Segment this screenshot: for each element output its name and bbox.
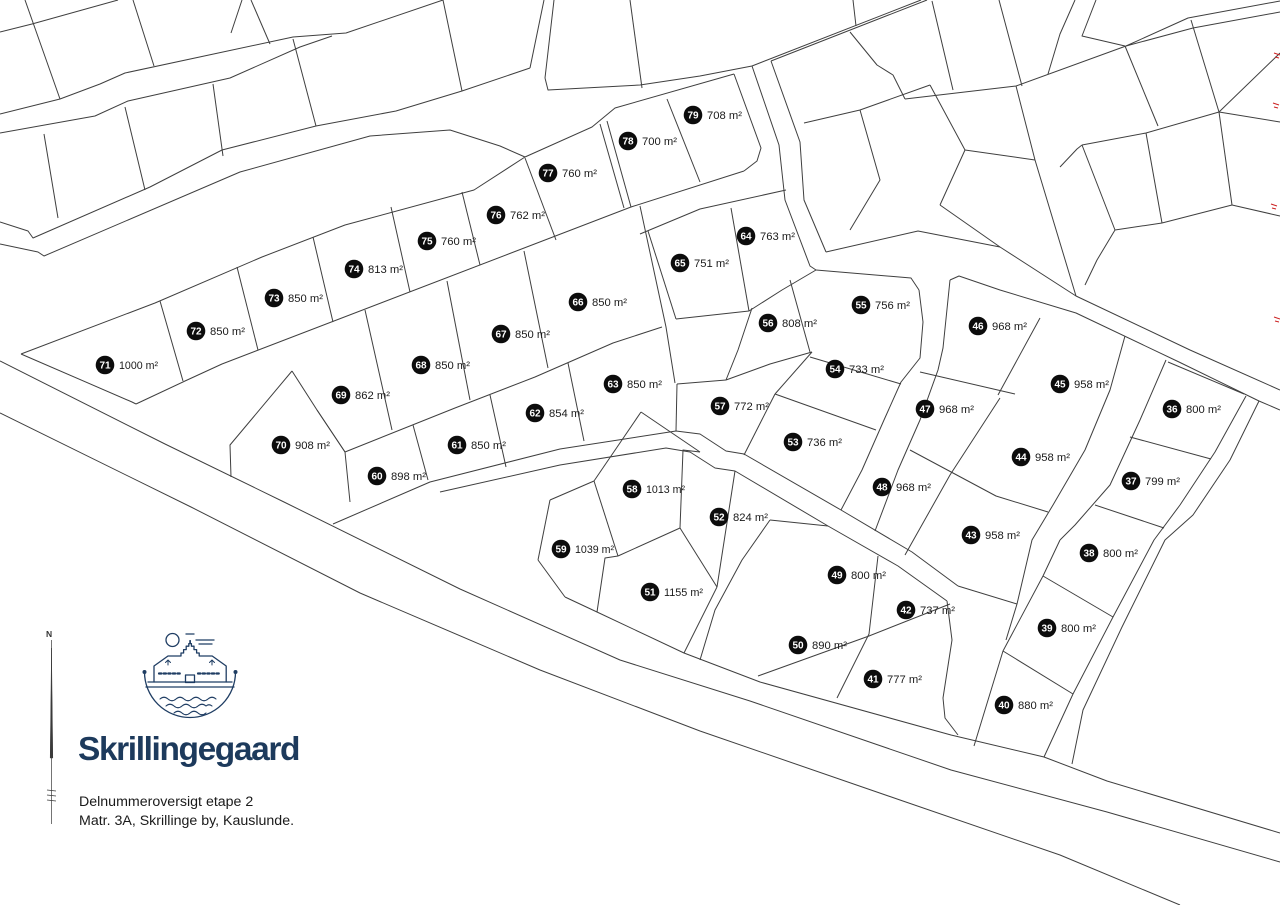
svg-text:Matr. 3A, Skrillinge by, Kausl: Matr. 3A, Skrillinge by, Kauslunde. (79, 813, 294, 829)
svg-text:42: 42 (900, 606, 912, 617)
svg-text:38: 38 (1083, 549, 1095, 560)
svg-text:59: 59 (555, 545, 567, 556)
svg-text:43: 43 (965, 531, 977, 542)
svg-text:70: 70 (275, 441, 287, 452)
svg-text:N: N (46, 629, 52, 639)
svg-text:41: 41 (867, 675, 879, 686)
svg-text:736 m²: 736 m² (807, 437, 842, 449)
svg-text:751 m²: 751 m² (694, 258, 729, 270)
svg-text:777 m²: 777 m² (887, 674, 922, 686)
svg-text:69: 69 (335, 391, 347, 402)
svg-text:880 m²: 880 m² (1018, 700, 1053, 712)
svg-text:75: 75 (421, 237, 433, 248)
svg-text:808 m²: 808 m² (782, 318, 817, 330)
svg-text:813 m²: 813 m² (368, 264, 403, 276)
svg-text:800 m²: 800 m² (1061, 623, 1096, 635)
svg-text:968 m²: 968 m² (896, 482, 931, 494)
svg-text:71: 71 (99, 361, 111, 372)
svg-text:862 m²: 862 m² (355, 390, 390, 402)
svg-text:48: 48 (876, 483, 888, 494)
svg-text:1155 m²: 1155 m² (664, 587, 703, 599)
svg-text:800 m²: 800 m² (851, 570, 886, 582)
svg-text:77: 77 (542, 169, 554, 180)
svg-text:57: 57 (714, 402, 726, 413)
svg-text:854 m²: 854 m² (549, 408, 584, 420)
svg-text:772 m²: 772 m² (734, 401, 769, 413)
svg-text:850 m²: 850 m² (471, 440, 506, 452)
svg-text:54: 54 (829, 365, 841, 376)
svg-text:79: 79 (687, 111, 699, 122)
svg-text:1039 m²: 1039 m² (575, 544, 614, 556)
svg-text:737 m²: 737 m² (920, 605, 955, 617)
svg-text:44: 44 (1015, 453, 1027, 464)
svg-text:56: 56 (762, 319, 774, 330)
svg-text:63: 63 (607, 380, 619, 391)
svg-text:64: 64 (740, 232, 752, 243)
svg-text:Delnummeroversigt etape 2: Delnummeroversigt etape 2 (79, 794, 253, 810)
svg-text:45: 45 (1054, 380, 1066, 391)
svg-text:908 m²: 908 m² (295, 440, 330, 452)
svg-text:37: 37 (1125, 477, 1137, 488)
svg-text:46: 46 (972, 322, 984, 333)
svg-text:799 m²: 799 m² (1145, 476, 1180, 488)
svg-text:850 m²: 850 m² (435, 360, 470, 372)
svg-text:68: 68 (415, 361, 427, 372)
svg-text:850 m²: 850 m² (627, 379, 662, 391)
svg-text:65: 65 (674, 259, 686, 270)
svg-text:53: 53 (787, 438, 799, 449)
svg-text:958 m²: 958 m² (1035, 452, 1070, 464)
svg-text:49: 49 (831, 571, 843, 582)
svg-text:898 m²: 898 m² (391, 471, 426, 483)
svg-text:968 m²: 968 m² (939, 404, 974, 416)
svg-text:756 m²: 756 m² (875, 300, 910, 312)
svg-text:800 m²: 800 m² (1103, 548, 1138, 560)
svg-text:850 m²: 850 m² (592, 297, 627, 309)
svg-text:55: 55 (855, 301, 867, 312)
svg-text:958 m²: 958 m² (1074, 379, 1109, 391)
svg-text:850 m²: 850 m² (515, 329, 550, 341)
svg-text:74: 74 (348, 265, 360, 276)
svg-text:850 m²: 850 m² (210, 326, 245, 338)
svg-text:733 m²: 733 m² (849, 364, 884, 376)
svg-text:50: 50 (792, 641, 804, 652)
svg-text:1000 m²: 1000 m² (119, 360, 158, 372)
svg-text:47: 47 (919, 405, 931, 416)
svg-text:72: 72 (190, 327, 202, 338)
svg-text:62: 62 (529, 409, 541, 420)
svg-text:850 m²: 850 m² (288, 293, 323, 305)
svg-text:Skrillingegaard: Skrillingegaard (78, 731, 299, 768)
svg-text:51: 51 (644, 588, 656, 599)
svg-text:40: 40 (998, 701, 1010, 712)
svg-text:36: 36 (1166, 405, 1178, 416)
svg-text:60: 60 (371, 472, 383, 483)
svg-text:67: 67 (495, 330, 507, 341)
svg-text:52: 52 (713, 513, 725, 524)
svg-text:763 m²: 763 m² (760, 231, 795, 243)
svg-text:61: 61 (451, 441, 463, 452)
svg-text:1013 m²: 1013 m² (646, 484, 685, 496)
svg-text:73: 73 (268, 294, 280, 305)
svg-text:890 m²: 890 m² (812, 640, 847, 652)
svg-text:76: 76 (490, 211, 502, 222)
svg-text:58: 58 (626, 485, 638, 496)
svg-text:824 m²: 824 m² (733, 512, 768, 524)
svg-text:39: 39 (1041, 624, 1053, 635)
svg-text:958 m²: 958 m² (985, 530, 1020, 542)
svg-text:66: 66 (572, 298, 584, 309)
svg-text:800 m²: 800 m² (1186, 404, 1221, 416)
svg-text:700 m²: 700 m² (642, 136, 677, 148)
svg-text:968 m²: 968 m² (992, 321, 1027, 333)
svg-text:78: 78 (622, 137, 634, 148)
svg-text:708 m²: 708 m² (707, 110, 742, 122)
svg-text:760 m²: 760 m² (562, 168, 597, 180)
svg-text:760 m²: 760 m² (441, 236, 476, 248)
svg-text:762 m²: 762 m² (510, 210, 545, 222)
